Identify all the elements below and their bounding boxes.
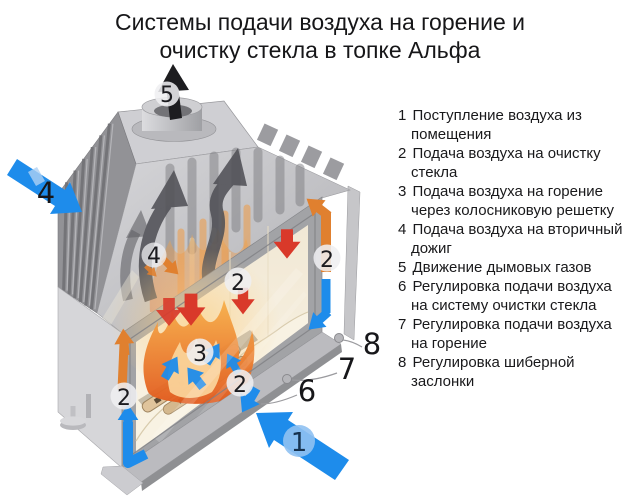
svg-text:2: 2 — [117, 386, 131, 411]
callout-4-inlet: 4 — [37, 176, 55, 210]
legend-num: 5 — [398, 259, 406, 276]
callout-6: 6 — [298, 374, 316, 408]
svg-text:5: 5 — [160, 83, 174, 108]
legend-text: Подача воздуха на очистку стекла — [411, 145, 601, 181]
legend-num: 7 — [398, 316, 406, 333]
svg-text:3: 3 — [193, 342, 207, 367]
diagram-canvas: Системы подачи воздуха на горение и очис… — [0, 0, 640, 499]
svg-text:2: 2 — [233, 373, 247, 398]
right-back-panel — [344, 186, 360, 340]
svg-text:2: 2 — [320, 248, 334, 273]
legend-item-6: 6 Регулировка подачи воздуха на систему … — [398, 277, 630, 315]
legend-item-7: 7 Регулировка подачи воздуха на горение — [398, 315, 630, 353]
legend-item-8: 8 Регулировка шиберной заслонки — [398, 353, 630, 391]
legend-text: Подача воздуха на вторичный дожиг — [411, 221, 622, 257]
svg-text:2: 2 — [231, 271, 245, 296]
legend-text: Движение дымовых газов — [413, 259, 592, 276]
legend-text: Регулировка подачи воздуха на систему оч… — [411, 278, 612, 314]
damper-knob — [335, 334, 344, 343]
legend: 1 Поступление воздуха из помещения 2 Под… — [398, 106, 630, 391]
legend-item-5: 5 Движение дымовых газов — [398, 258, 630, 277]
legend-num: 8 — [398, 354, 406, 371]
callout-7: 7 — [338, 352, 356, 386]
legend-num: 6 — [398, 278, 406, 295]
legend-item-2: 2 Подача воздуха на очистку стекла — [398, 144, 630, 182]
legend-num: 2 — [398, 145, 406, 162]
legend-item-3: 3 Подача воздуха на горение через колосн… — [398, 182, 630, 220]
legend-text: Подача воздуха на горение через колосник… — [411, 183, 614, 219]
callout-8: 8 — [363, 327, 381, 361]
legend-num: 1 — [398, 107, 406, 124]
legend-num: 3 — [398, 183, 406, 200]
legend-text: Регулировка подачи воздуха на горение — [411, 316, 612, 352]
legend-item-4: 4 Подача воздуха на вторичный дожиг — [398, 220, 630, 258]
combustion-air-knob — [283, 375, 292, 384]
legend-text: Поступление воздуха из помещения — [411, 107, 582, 143]
svg-text:1: 1 — [291, 428, 308, 458]
legend-item-1: 1 Поступление воздуха из помещения — [398, 106, 630, 144]
svg-text:4: 4 — [147, 244, 161, 269]
fireplace-illustration: 4 6 7 8 5 4 2 3 2 2 2 — [0, 0, 398, 499]
legend-num: 4 — [398, 221, 406, 238]
legend-text: Регулировка шиберной заслонки — [411, 354, 575, 390]
